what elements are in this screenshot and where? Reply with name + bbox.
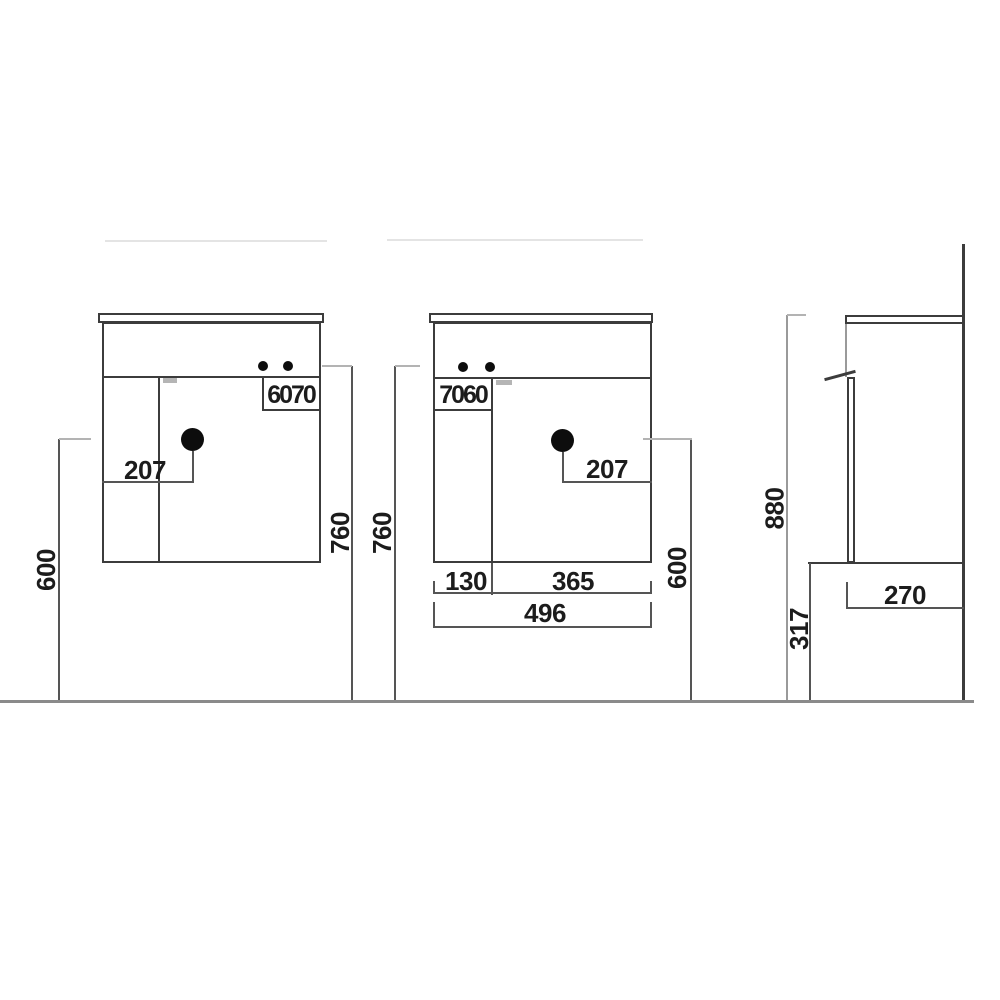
dim-tick-total-right	[650, 602, 652, 628]
dim-label-left-height-600: 600	[33, 540, 59, 600]
dim-label-total-width: 496	[519, 601, 571, 625]
dim-label-overall-height: 880	[761, 479, 788, 539]
sink-hole	[181, 428, 204, 451]
faucet-hole	[458, 362, 468, 372]
side-view-bottom-line	[808, 562, 964, 564]
dim-line-6070-bottom	[262, 409, 321, 411]
dim-tick-270	[846, 582, 848, 609]
dim-tick-760-second	[395, 365, 420, 367]
dim-tick-760-first	[322, 365, 352, 367]
dim-label-door-width: 130	[440, 569, 492, 593]
dim-label-left-sink-offset: 207	[118, 459, 172, 481]
dim-label-left-faucet-offsets: 6070	[262, 382, 320, 408]
sink-hole	[551, 429, 574, 452]
faint-border-line	[387, 239, 643, 241]
drawing-canvas: 6070 207 600 760 760 7060 207 130 365 49…	[0, 0, 1000, 1000]
side-view-wall-line	[962, 244, 965, 702]
dim-tick-600-left	[59, 438, 91, 440]
dim-tick-total-left	[433, 602, 435, 628]
dim-line-7060-bottom	[433, 409, 493, 411]
dim-tick-600-front	[643, 438, 692, 440]
side-view-side-panel	[847, 377, 855, 563]
dim-label-clearance-below: 317	[786, 599, 812, 659]
left-view-door-handle	[163, 378, 177, 383]
dim-label-front-height-600: 600	[664, 538, 690, 598]
ground-line	[0, 700, 974, 703]
front-view-cabinet-body	[433, 322, 652, 563]
dim-label-left-worktop-height: 760	[327, 503, 353, 563]
faucet-hole	[283, 361, 293, 371]
dim-tick-width-right	[650, 581, 652, 594]
front-view-apron-line	[433, 377, 652, 379]
dim-tick-880	[787, 314, 806, 316]
dim-label-depth: 270	[878, 583, 932, 607]
dim-tick-width-left	[433, 581, 435, 594]
dim-line-207-vertical	[562, 452, 564, 482]
side-view-countertop	[845, 315, 964, 324]
dim-line-207-vertical	[192, 451, 194, 482]
front-view-door-handle	[496, 380, 512, 385]
dim-label-front-sink-offset: 207	[580, 458, 634, 480]
left-view-apron-line	[102, 376, 321, 378]
left-view-cabinet-body	[102, 322, 321, 563]
side-view-front-edge-upper	[845, 324, 847, 377]
faucet-hole	[485, 362, 495, 372]
dim-label-basin-width: 365	[547, 569, 599, 593]
dim-label-front-worktop-height: 760	[369, 503, 395, 563]
faucet-hole	[258, 361, 268, 371]
dim-label-front-faucet-offsets: 7060	[434, 382, 492, 408]
faint-border-line	[105, 240, 327, 242]
